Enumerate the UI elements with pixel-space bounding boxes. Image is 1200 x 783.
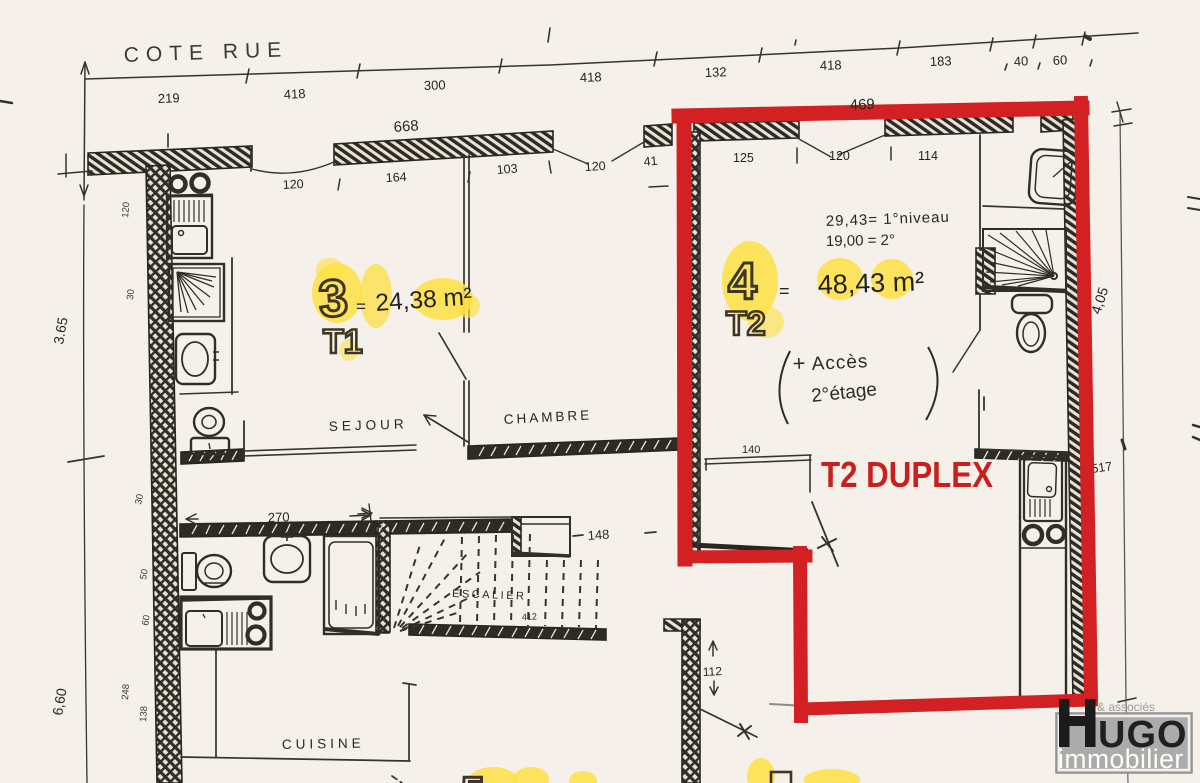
svg-text:219: 219 (158, 90, 180, 106)
svg-text:120: 120 (584, 159, 606, 174)
svg-text:140: 140 (742, 444, 760, 456)
svg-text:132: 132 (705, 64, 727, 80)
svg-text:668: 668 (393, 117, 419, 136)
svg-text:300: 300 (424, 77, 446, 93)
svg-text:immobilier: immobilier (1058, 744, 1184, 774)
svg-text:120: 120 (829, 149, 850, 163)
svg-text:60: 60 (1052, 52, 1067, 68)
svg-text:30: 30 (125, 289, 137, 300)
svg-text:40: 40 (1013, 53, 1028, 69)
svg-text:418: 418 (820, 57, 842, 73)
svg-text:3: 3 (317, 269, 350, 329)
svg-text:418: 418 (283, 86, 305, 102)
svg-text:60: 60 (140, 614, 153, 626)
svg-text:138: 138 (138, 706, 150, 723)
svg-text:5: 5 (461, 768, 484, 783)
svg-text:& associés: & associés (1097, 700, 1155, 714)
svg-text:T1: T1 (323, 323, 363, 361)
svg-text:469: 469 (849, 96, 875, 114)
svg-text:270: 270 (268, 509, 290, 525)
svg-text:+: + (792, 350, 806, 376)
svg-text:112: 112 (702, 664, 722, 679)
svg-text:50: 50 (138, 568, 151, 580)
svg-text:248: 248 (120, 684, 132, 701)
svg-text:CUISINE: CUISINE (282, 736, 365, 752)
svg-text:183: 183 (930, 53, 952, 69)
svg-text:412: 412 (522, 611, 537, 622)
svg-text:418: 418 (580, 69, 602, 85)
svg-text:120: 120 (282, 177, 304, 192)
svg-text:T2 DUPLEX: T2 DUPLEX (821, 454, 993, 495)
svg-text:Accès: Accès (811, 351, 869, 375)
svg-text:T2: T2 (726, 305, 766, 343)
svg-text:103: 103 (496, 162, 518, 177)
svg-text:164: 164 (385, 170, 407, 185)
svg-text:SEJOUR: SEJOUR (329, 416, 408, 434)
svg-text:148: 148 (587, 527, 610, 543)
svg-text:19,00 = 2°: 19,00 = 2° (826, 232, 895, 250)
svg-text:48,43 m²: 48,43 m² (817, 266, 925, 300)
svg-text:120: 120 (120, 202, 132, 219)
svg-text:4: 4 (728, 253, 757, 311)
svg-text:=: = (779, 281, 790, 301)
svg-text:=: = (356, 297, 366, 316)
svg-text:125: 125 (733, 151, 754, 165)
svg-text:114: 114 (918, 149, 938, 163)
svg-text:41: 41 (643, 154, 658, 169)
svg-text:30: 30 (133, 493, 146, 506)
